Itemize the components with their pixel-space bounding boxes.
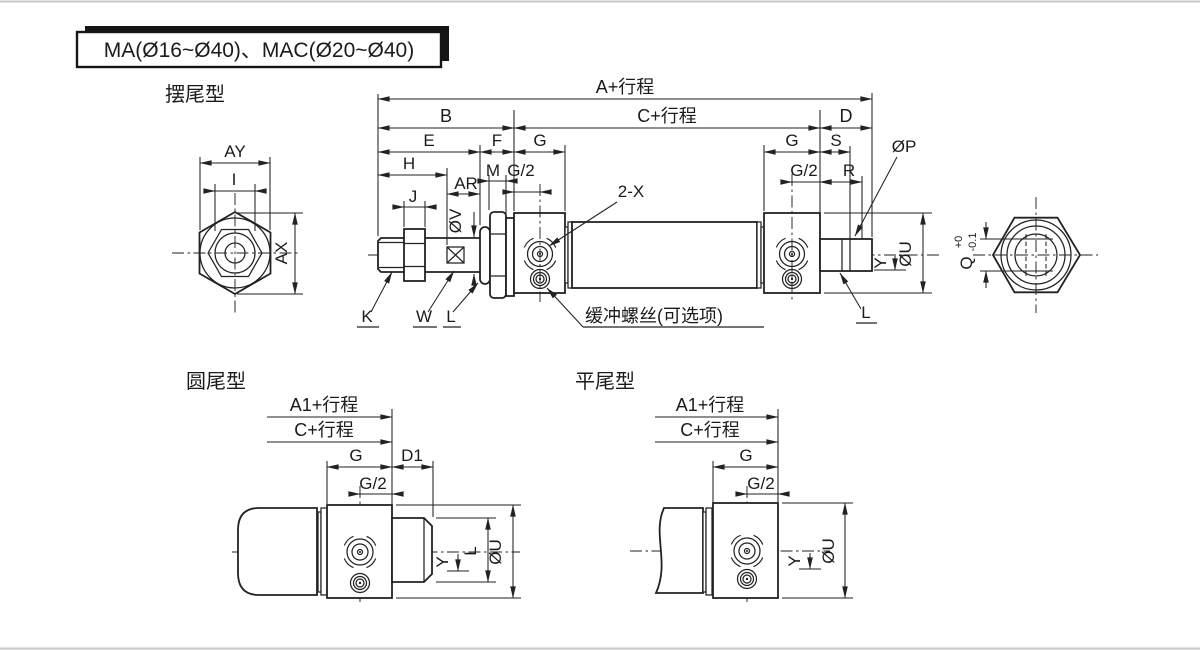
cushion-note-label: 缓冲螺丝(可选项) <box>585 306 723 326</box>
dim-label-g-half-round: G/2 <box>359 474 386 493</box>
dim-label-c: C+行程 <box>637 106 697 126</box>
dim-label-ax: AX <box>272 242 291 265</box>
dim-label-a1-round: A1+行程 <box>290 395 359 415</box>
swing-type-heading: 摆尾型 <box>165 83 225 106</box>
dim-label-a1-flat: A1+行程 <box>676 395 745 415</box>
dim-label-q: Q <box>957 256 976 269</box>
dim-label-ov: ØV <box>446 208 465 233</box>
washer <box>480 227 490 284</box>
round-cushion-screw <box>351 574 370 593</box>
round-tail-boss <box>392 518 432 582</box>
dim-label-ou-round: ØU <box>486 539 505 565</box>
mounting-nut <box>490 212 506 298</box>
dim-label-ay: AY <box>224 142 245 161</box>
dim-label-r: R <box>843 161 855 180</box>
dim-label-op: ØP <box>892 137 917 156</box>
main-side-view <box>368 174 940 302</box>
dim-label-l-round: L <box>461 546 480 555</box>
front-head-block <box>514 213 565 293</box>
dim-label-c-round: C+行程 <box>294 420 354 440</box>
dim-label-f: F <box>492 131 502 150</box>
rod-nut <box>404 229 425 281</box>
flat-cushion-screw <box>738 570 757 589</box>
mounting-plate <box>506 218 514 296</box>
dim-label-l-washer: L <box>446 307 455 326</box>
round-tail-view: A1+行程 C+行程 G D1 G/2 ØU L Y <box>232 395 521 602</box>
dim-label-m: M <box>486 161 500 180</box>
dim-label-l-boss: L <box>861 303 870 322</box>
round-type-heading: 圆尾型 <box>186 370 246 393</box>
dim-label-h: H <box>403 154 415 173</box>
dim-label-d1-round: D1 <box>401 446 423 465</box>
dim-label-g-half-right: G/2 <box>790 161 817 180</box>
dim-label-y-flat: Y <box>785 555 804 566</box>
technical-drawing: MA(Ø16~Ø40)、MAC(Ø20~Ø40) 摆尾型 圆尾型 平尾型 AY … <box>0 0 1200 650</box>
flat-head-block <box>713 503 778 598</box>
dim-label-j: J <box>409 187 418 206</box>
cylinder-tube <box>572 222 757 288</box>
dim-label-e: E <box>423 131 434 150</box>
dim-label-g-left: G <box>533 131 546 150</box>
dim-label-k: K <box>361 307 373 326</box>
dim-label-ou-main: ØU <box>896 241 915 267</box>
dim-label-w: W <box>416 307 432 326</box>
dim-label-g-flat: G <box>739 446 752 465</box>
dim-label-b: B <box>440 106 452 126</box>
flat-tube <box>656 508 703 593</box>
wrench-flats <box>447 247 464 263</box>
page-title: MA(Ø16~Ø40)、MAC(Ø20~Ø40) <box>104 39 414 62</box>
title-block: MA(Ø16~Ø40)、MAC(Ø20~Ø40) <box>77 26 449 67</box>
dim-label-q-tol-upper: +0 <box>953 236 965 249</box>
tail-hex-view: Q +0 -0.1 <box>953 197 1098 313</box>
front-hex-view: AY I AX <box>172 142 303 313</box>
dim-label-g-half-flat: G/2 <box>747 474 774 493</box>
dim-label-g-right: G <box>785 131 798 150</box>
flat-tail-view: A1+行程 C+行程 G G/2 ØU Y <box>630 395 853 602</box>
dim-label-y-round: Y <box>433 556 452 567</box>
drawing-page: MA(Ø16~Ø40)、MAC(Ø20~Ø40) 摆尾型 圆尾型 平尾型 AY … <box>0 0 1200 650</box>
dim-label-y-main: Y <box>871 257 890 268</box>
dim-label-ar: AR <box>454 174 478 193</box>
port-callout-label: 2-X <box>618 182 644 201</box>
flat-type-heading: 平尾型 <box>575 370 635 393</box>
dim-label-ou-flat: ØU <box>819 538 838 564</box>
dim-label-s: S <box>830 131 841 150</box>
dim-label-i: I <box>232 170 237 189</box>
dim-label-a: A+行程 <box>596 77 655 97</box>
dim-label-q-tol-lower: -0.1 <box>967 233 979 252</box>
dim-label-g-half-left: G/2 <box>507 161 534 180</box>
swing-tail-boss <box>820 239 872 271</box>
dim-label-g-round: G <box>349 446 362 465</box>
dim-label-c-flat: C+行程 <box>680 420 740 440</box>
round-tube <box>238 508 317 595</box>
dim-label-d: D <box>840 106 853 126</box>
